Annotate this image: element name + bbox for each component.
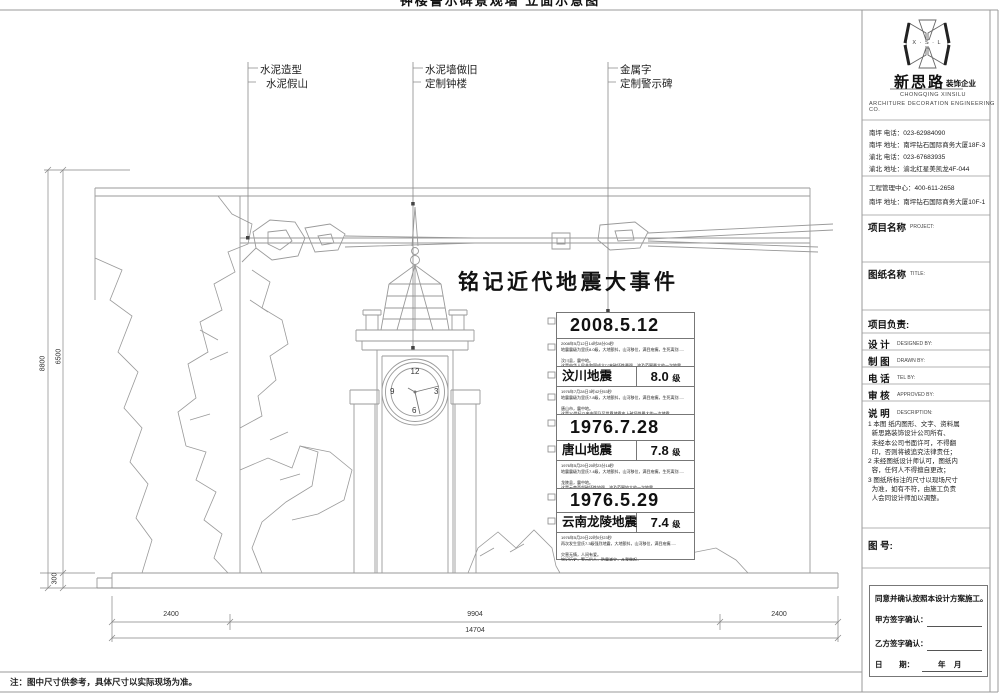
quake-magnitude: 8.0 级 <box>637 367 694 386</box>
dim-bottom-left: 2400 <box>146 611 196 618</box>
contact-line: 南坪 电话：023-62984090 <box>869 127 945 137</box>
company-suffix: 装饰企业 <box>946 78 976 89</box>
wall-outline <box>95 188 810 573</box>
clock-numeral-12: 12 <box>409 367 421 376</box>
contact-line: 南坪 地址：南坪钻石国际商务大厦10F-1 <box>869 196 985 206</box>
base-platform <box>97 573 838 588</box>
title-block-notes: 1 本图 纸内图形、文字、资料属 新思路装饰设计公司所有、 未经本公司书面许可，… <box>868 420 960 504</box>
logo-xsl-text: X · S · L <box>907 40 947 46</box>
quake-magnitude: 7.8 级 <box>637 441 694 460</box>
drawing-sheet: 钟楼警示碑景观墙 立面示意图 水泥造型 水泥假山 水泥墙做旧 定制钟楼 金属字 … <box>0 0 1000 696</box>
stele-row-tangshan: 唐山地震 7.8 级 <box>557 441 694 461</box>
quake-name: 汶川地震 <box>557 367 637 386</box>
field-tel-label: 电 话 <box>868 371 890 385</box>
field-tel-en: TEL BY: <box>897 375 915 381</box>
date-line <box>922 671 982 672</box>
company-name-cn: 新思路 <box>894 71 945 92</box>
party-a-signature-line <box>927 626 982 627</box>
leader-label-cement-shape: 水泥造型 <box>260 62 302 77</box>
stele-date-tangshan: 1976.7.28 <box>557 415 694 441</box>
field-design-en: DESIGNED BY: <box>897 341 932 347</box>
clock-numeral-6: 6 <box>412 406 416 415</box>
field-desc-label: 说 明 <box>868 406 890 420</box>
stele-desc-longling: 1976年5月29日20时23分18秒 地震震级为里氏7.4级，大地颤抖，山河移… <box>557 461 694 489</box>
clock-tower <box>350 207 480 573</box>
field-manager-label: 项目负责: <box>868 317 909 331</box>
field-desc-en: DESCRIPTION: <box>897 410 933 416</box>
quake-magnitude: 7.4 级 <box>637 513 694 532</box>
party-b-signature-label: 乙方签字确认： <box>875 638 928 649</box>
leader-lines <box>246 62 618 350</box>
magnitude-value: 7.4 <box>651 515 669 530</box>
magnitude-unit: 级 <box>672 520 680 529</box>
cad-line-art <box>0 0 1000 696</box>
company-en-1: CHONGQING XINSILU <box>900 92 966 98</box>
sheet-footnote: 注：图中尺寸供参考，具体尺寸以实际现场为准。 <box>10 676 197 688</box>
clock-numeral-9: 9 <box>390 387 394 396</box>
signature-box: 同意并确认按照本设计方案施工。 甲方签字确认： 乙方签字确认： 日 期： 年 月 <box>869 585 988 677</box>
field-draw-en: DRAWN BY: <box>897 358 925 364</box>
drawing-number-label: 图 号: <box>868 538 893 552</box>
field-approve-en: APPROVED BY: <box>897 392 934 398</box>
field-project-en: PROJECT: <box>910 224 934 230</box>
field-design-label: 设 计 <box>868 337 890 351</box>
stele-date-longling: 1976.5.29 <box>557 489 694 513</box>
quake-name: 唐山地震 <box>557 441 637 460</box>
field-approve-label: 审 核 <box>868 388 890 402</box>
left-scroll-ornament <box>242 220 475 262</box>
date-suffix: 年 月 <box>938 659 961 670</box>
stele-desc-footer: 1976年5月29日22时0分23秒 再次发生里氏7.3级强烈地震，大地颤抖，山… <box>557 533 694 561</box>
stele-notches <box>548 318 555 524</box>
magnitude-unit: 级 <box>672 448 680 457</box>
contact-line: 南坪 地址：南坪钻石国际商务大厦18F-3 <box>869 139 985 149</box>
wall-main-title: 铭记近代地震大事件 <box>458 266 679 296</box>
earthquake-warning-stele: 2008.5.12 2008年5月12日14时28分04秒 地震震级为里氏8.0… <box>556 312 695 560</box>
dim-bottom-middle: 9904 <box>450 611 500 618</box>
date-label: 日 期： <box>875 659 914 670</box>
quake-name: 云南龙陵地震 <box>557 513 637 532</box>
field-title-label: 图纸名称 <box>868 267 906 281</box>
stele-row-wenchuan: 汶川地震 8.0 级 <box>557 367 694 387</box>
leader-label-custom-clock-tower: 定制钟楼 <box>425 76 467 91</box>
dim-bottom-total: 14704 <box>450 627 500 634</box>
party-b-signature-line <box>927 650 982 651</box>
contact-line: 渝北 电话：023-67683935 <box>869 151 945 161</box>
stele-desc-wenchuan: 2008年5月12日14时28分04秒 地震震级为里氏8.0级，大地颤抖，山河移… <box>557 339 694 367</box>
signature-agree-text: 同意并确认按照本设计方案施工。 <box>875 593 988 604</box>
right-scroll-ornament <box>552 222 833 252</box>
leader-label-warning-stele: 定制警示碑 <box>620 76 673 91</box>
dim-left-base: 300 <box>52 566 59 592</box>
magnitude-value: 8.0 <box>651 369 669 384</box>
contact-line: 工程管理中心：400-611-2658 <box>869 182 955 192</box>
party-a-signature-label: 甲方签字确认： <box>875 614 928 625</box>
dim-left-outer: 8800 <box>40 349 47 379</box>
stele-date-wenchuan: 2008.5.12 <box>557 313 694 339</box>
field-project-label: 项目名称 <box>868 220 906 234</box>
leader-label-aged-wall: 水泥墙做旧 <box>425 62 478 77</box>
leader-label-metal-letters: 金属字 <box>620 62 652 77</box>
clock-numeral-3: 3 <box>434 387 438 396</box>
company-en-2: ARCHITURE DECORATION ENGINEERING CO. <box>869 101 1000 113</box>
sheet-border <box>0 10 998 692</box>
stele-desc-tangshan: 1976年7月28日3时42分53秒 地震震级为里氏7.8级，大地颤抖，山河移位… <box>557 387 694 415</box>
dim-left-inner: 6500 <box>56 342 63 372</box>
magnitude-unit: 级 <box>672 374 680 383</box>
cropped-header-text: 钟楼警示碑景观墙 立面示意图 <box>330 0 670 9</box>
stele-row-longling: 云南龙陵地震 7.4 级 <box>557 513 694 533</box>
field-draw-label: 制 图 <box>868 354 890 368</box>
field-title-en: TITLE: <box>910 271 925 277</box>
magnitude-value: 7.8 <box>651 443 669 458</box>
leader-label-cement-rockery: 水泥假山 <box>266 76 308 91</box>
contact-line: 渝北 地址：渝北红星美凯龙4F-044 <box>869 163 969 173</box>
dim-bottom-right: 2400 <box>754 611 804 618</box>
